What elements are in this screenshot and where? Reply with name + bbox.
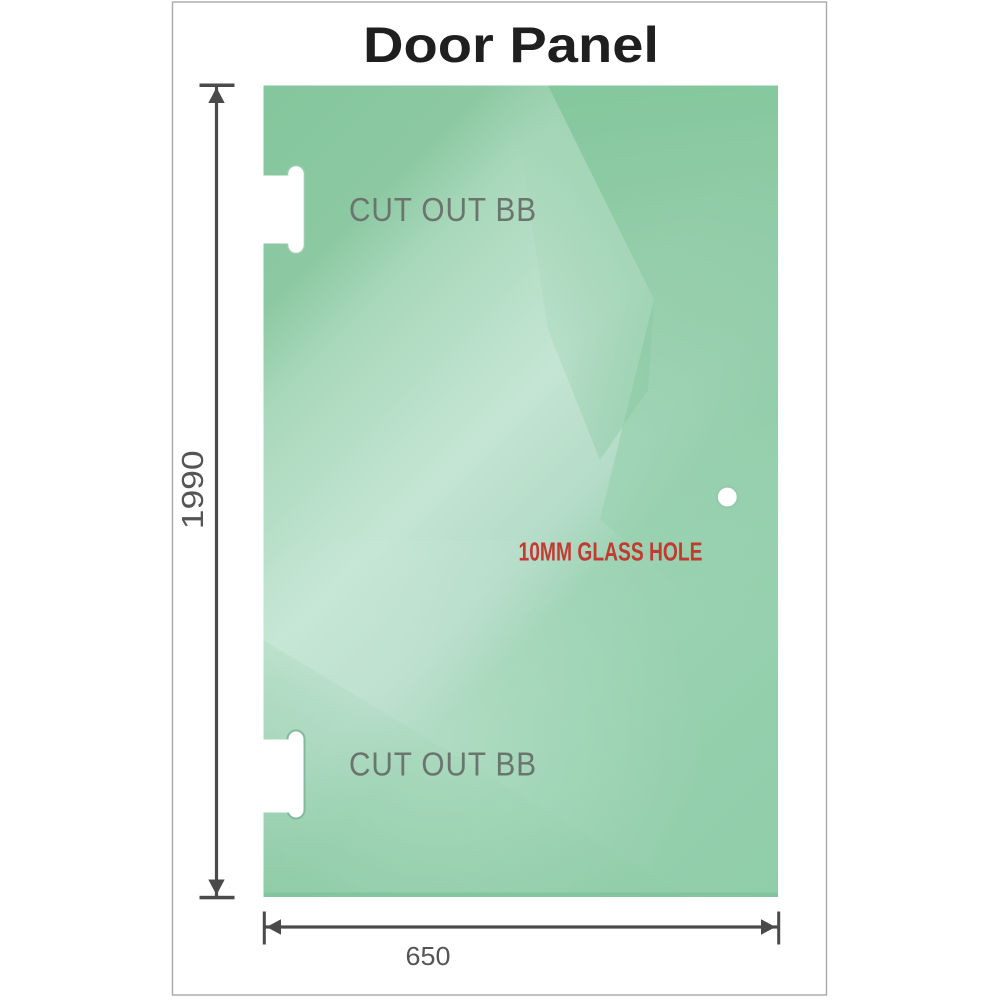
svg-text:650: 650 <box>406 941 451 971</box>
svg-text:CUT OUT BB: CUT OUT BB <box>349 191 537 228</box>
svg-text:CUT OUT BB: CUT OUT BB <box>349 746 537 783</box>
svg-text:10MM GLASS HOLE: 10MM GLASS HOLE <box>519 537 703 567</box>
svg-text:1990: 1990 <box>175 450 210 529</box>
svg-text:Door Panel: Door Panel <box>363 17 659 73</box>
